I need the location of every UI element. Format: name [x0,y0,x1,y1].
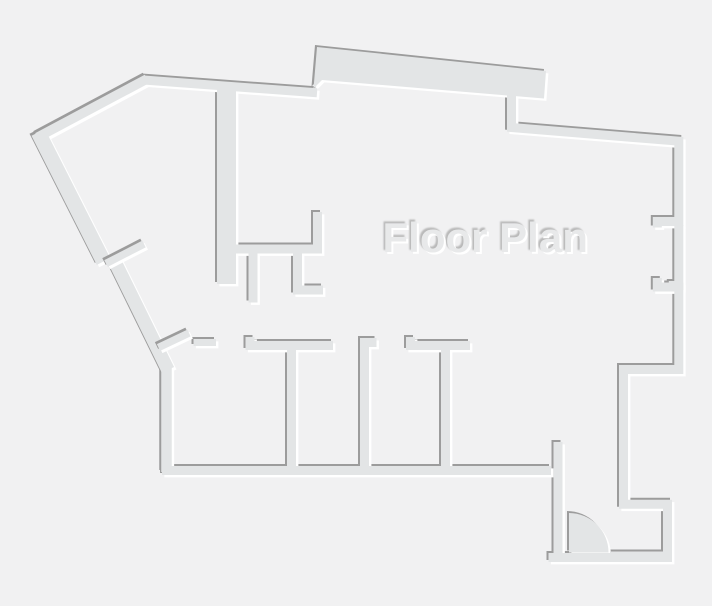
svg-text:Floor Plan: Floor Plan [383,214,588,261]
